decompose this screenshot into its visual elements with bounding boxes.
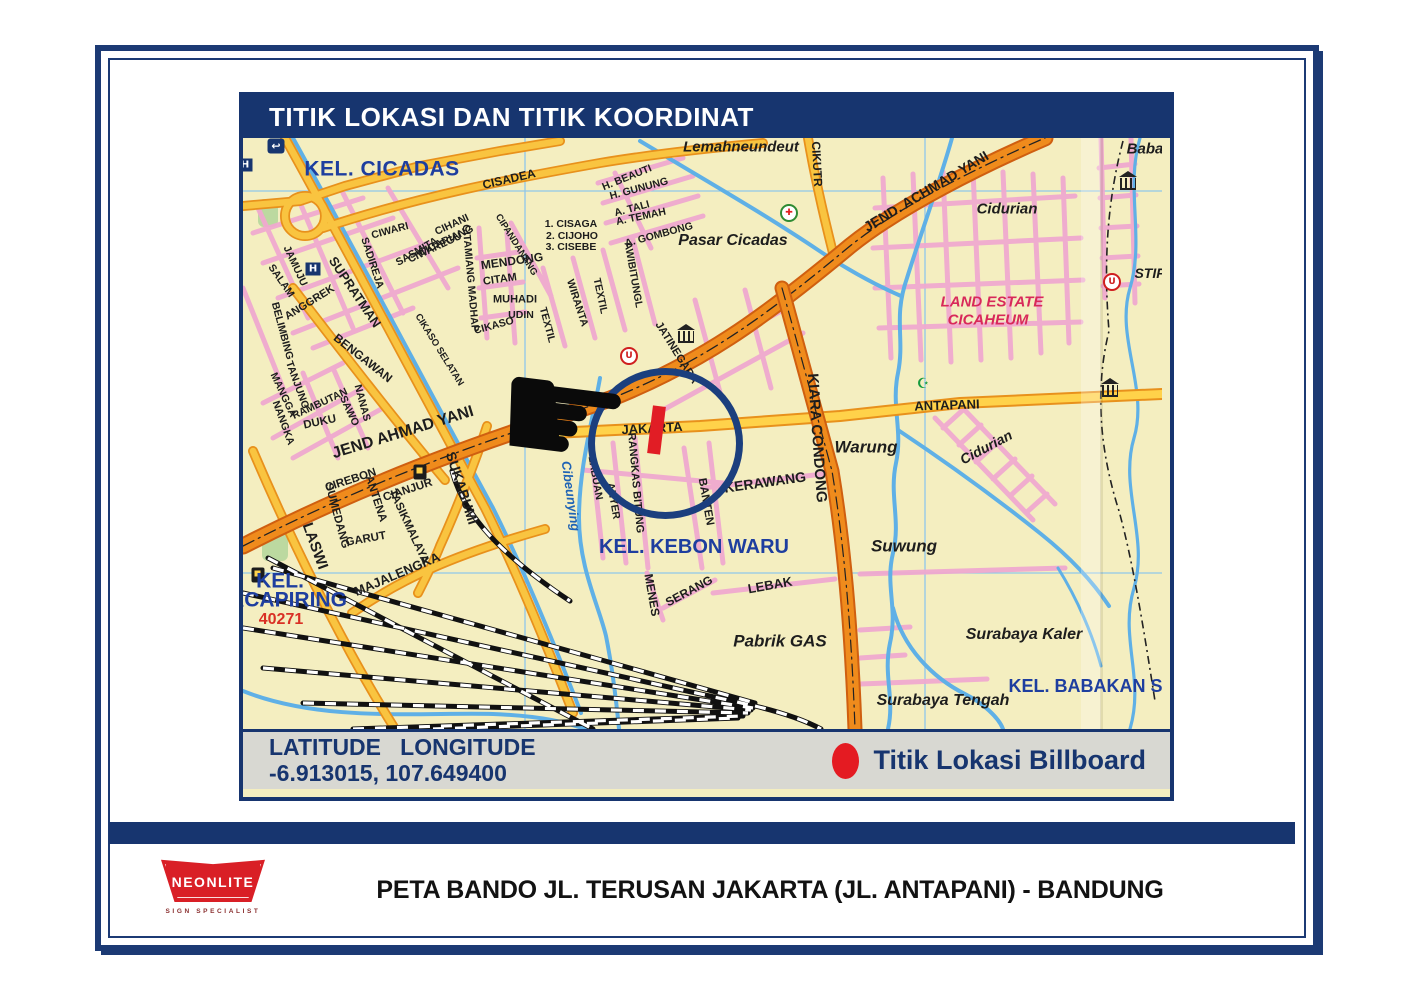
- map-label: CICAHEUM: [948, 313, 1029, 328]
- coords-value: -6.913015, 107.649400: [269, 761, 536, 787]
- logo-shape: NEONLITE: [161, 858, 265, 902]
- panel-header: TITIK LOKASI DAN TITIK KOORDINAT: [243, 96, 1170, 138]
- legend-label: Titik Lokasi Billboard: [873, 745, 1146, 776]
- map-label: Cidurian: [977, 202, 1038, 217]
- hand-pointer-icon: [486, 333, 640, 500]
- map-label: 40271: [259, 612, 304, 628]
- logo-tagline: SIGN SPECIALIST: [157, 908, 269, 915]
- map-label: Warung: [835, 439, 898, 456]
- mosque-icon: [917, 376, 930, 392]
- map-label: Pabrik GAS: [733, 633, 827, 650]
- neonlite-logo: NEONLITE SIGN SPECIALIST: [157, 858, 269, 922]
- map-label: KEL. BABAKAN SU: [1008, 677, 1162, 695]
- map-label: Surabaya Kaler: [966, 627, 1083, 643]
- map-label: Suwung: [871, 538, 937, 555]
- panel-footer: LATITUDE LONGITUDE -6.913015, 107.649400…: [243, 729, 1170, 789]
- map-label: 2. CIJOHO: [546, 231, 598, 242]
- red-cross-icon: [780, 204, 798, 222]
- logo-keyline: [165, 862, 261, 898]
- map-label: MUHADI: [493, 295, 537, 306]
- u-turn-icon: [268, 139, 285, 154]
- hospital-icon: [306, 263, 321, 276]
- map-label: ACAPIRING: [243, 590, 347, 611]
- divider-band: [109, 822, 1295, 844]
- map-area: KEL. CICADASCISADEALemahneundeutCIKUTRH.…: [243, 138, 1162, 729]
- map-caption: PETA BANDO JL. TERUSAN JAKARTA (JL. ANTA…: [376, 876, 1163, 905]
- map-label: Baba: [1127, 142, 1162, 157]
- map-label: 1. CISAGA: [545, 219, 598, 230]
- hospital-icon: [243, 159, 253, 172]
- legend: Titik Lokasi Billboard: [832, 743, 1146, 779]
- map-label: CIKUTR: [810, 141, 824, 187]
- map-panel: TITIK LOKASI DAN TITIK KOORDINAT: [239, 92, 1174, 801]
- coords-label: LATITUDE LONGITUDE: [269, 735, 536, 761]
- map-label: KEL. CICADAS: [304, 159, 459, 180]
- map-label: LAND ESTATE: [941, 295, 1044, 310]
- bank-icon: [1102, 385, 1118, 397]
- u-marker-icon: [1103, 273, 1121, 291]
- map-label: Lemahneundeut: [683, 140, 799, 155]
- bank-icon: [678, 331, 694, 343]
- billboard-dot-icon: [832, 743, 859, 779]
- map-label: Surabaya Tengah: [877, 693, 1010, 709]
- map-label: Pasar Cicadas: [678, 233, 787, 249]
- map-label: ANTAPANI: [914, 397, 980, 412]
- map-label: 3. CISEBE: [546, 242, 597, 253]
- coordinates-block: LATITUDE LONGITUDE -6.913015, 107.649400: [243, 735, 536, 787]
- map-label: STIP: [1134, 266, 1162, 280]
- map-label: KEL. KEBON WARU: [599, 537, 789, 557]
- page-title: TITIK LOKASI DAN TITIK KOORDINAT: [269, 102, 754, 133]
- bank-icon: [1120, 178, 1136, 190]
